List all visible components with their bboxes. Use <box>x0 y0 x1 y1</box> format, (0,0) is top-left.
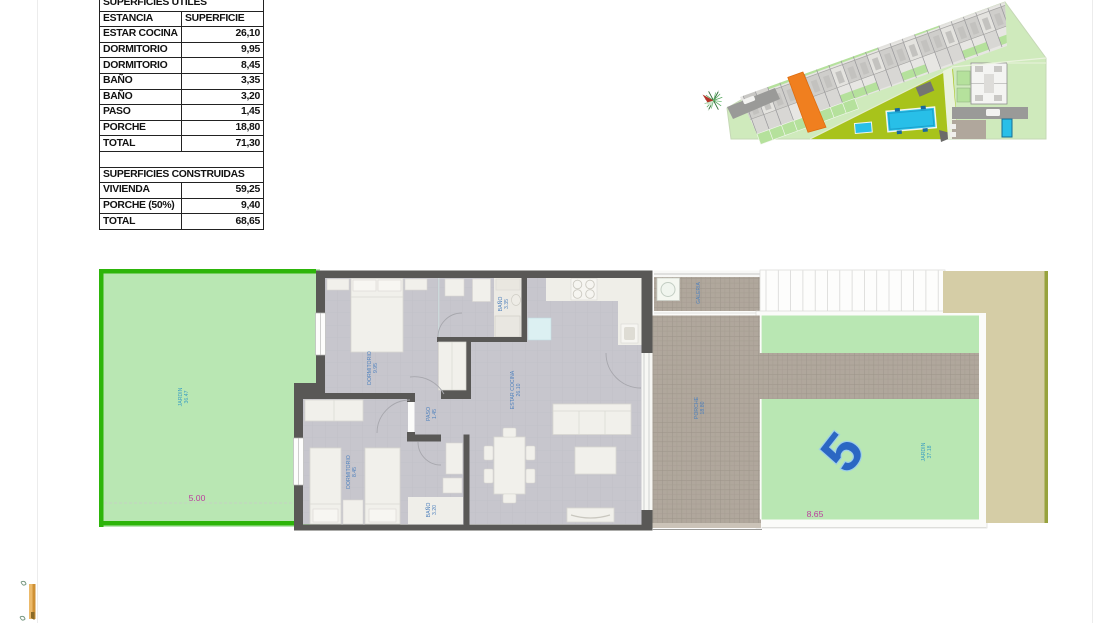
svg-text:GALERIA: GALERIA <box>696 282 702 304</box>
svg-text:26.10: 26.10 <box>516 383 522 396</box>
svg-text:37.18: 37.18 <box>927 445 933 458</box>
svg-text:1.45: 1.45 <box>432 409 438 419</box>
svg-text:BAÑO: BAÑO <box>425 503 432 518</box>
svg-text:BAÑO: BAÑO <box>497 297 504 312</box>
svg-text:3.35: 3.35 <box>504 299 510 309</box>
svg-text:3.20: 3.20 <box>432 505 438 515</box>
svg-text:18.80: 18.80 <box>700 401 706 414</box>
svg-text:5.00: 5.00 <box>189 493 206 503</box>
svg-text:8.45: 8.45 <box>352 467 358 477</box>
svg-text:8.65: 8.65 <box>807 509 824 519</box>
svg-text:9.95: 9.95 <box>373 363 379 373</box>
svg-text:36.47: 36.47 <box>184 390 190 403</box>
